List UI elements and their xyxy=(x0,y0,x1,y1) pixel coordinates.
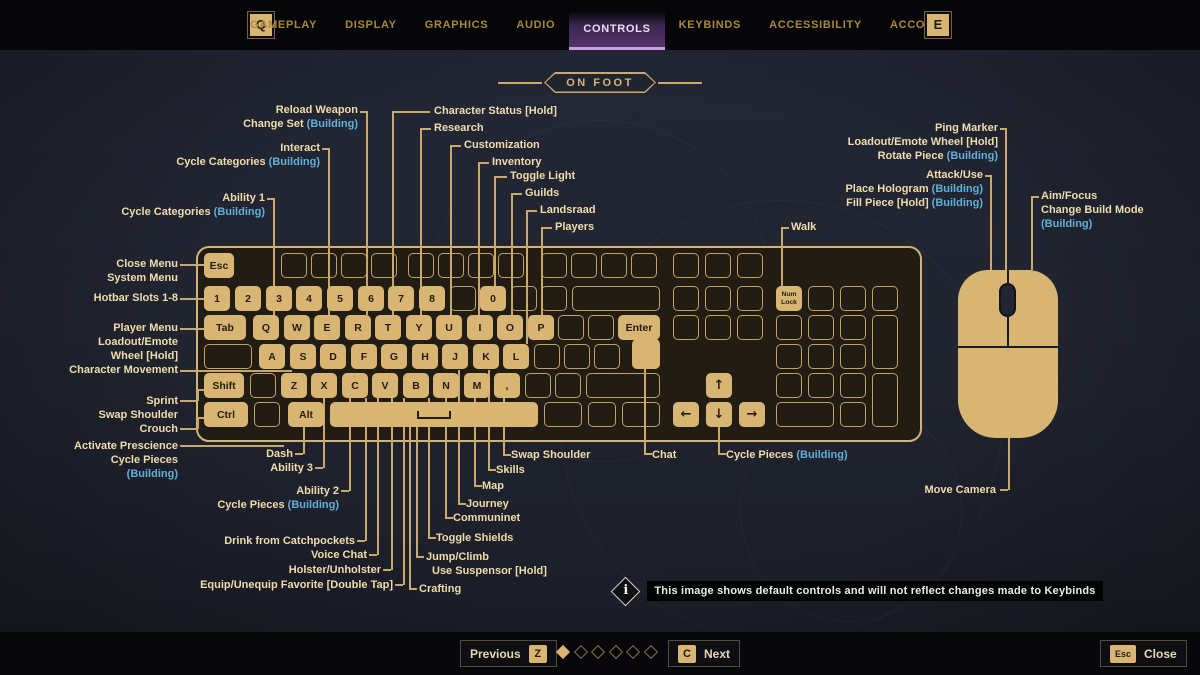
callout-line: Ping Marker xyxy=(848,121,998,135)
tab-keybinds[interactable]: KEYBINDS xyxy=(665,0,755,50)
keybind-callout: Sprint xyxy=(146,394,178,408)
keybind-callout: Journey xyxy=(466,497,509,511)
key-4: 4 xyxy=(296,286,322,311)
key-blank xyxy=(808,286,834,311)
tab-accessibility[interactable]: ACCESSIBILITY xyxy=(755,0,876,50)
callout-line: Player Menu xyxy=(98,321,178,335)
tab-controls[interactable]: CONTROLS xyxy=(569,12,664,50)
mouse-body-divider xyxy=(958,346,1058,348)
connector-line xyxy=(197,389,204,391)
connector-line xyxy=(1031,196,1033,270)
callout-line: Toggle Shields xyxy=(436,531,513,545)
key-6: 6 xyxy=(358,286,384,311)
key-blank xyxy=(541,286,567,311)
callout-line: Character Status [Hold] xyxy=(434,104,557,118)
next-tab-key-badge: E xyxy=(924,11,952,39)
key-blank xyxy=(564,344,590,369)
callout-line: Chat xyxy=(652,448,676,462)
keybind-callout: Move Camera xyxy=(924,483,996,497)
keybind-callout: Drink from Catchpockets xyxy=(224,534,355,548)
tab-graphics[interactable]: GRAPHICS xyxy=(411,0,503,50)
key-num-lock: Num Lock xyxy=(776,286,802,311)
close-button[interactable]: Esc Close xyxy=(1100,640,1187,667)
connector-line xyxy=(488,469,496,471)
callout-line: Close Menu xyxy=(107,257,178,271)
section-title: ON FOOT xyxy=(546,74,655,92)
tab-gameplay[interactable]: GAMEPLAY xyxy=(236,0,331,50)
callout-line: Swap Shoulder xyxy=(511,448,590,462)
callout-line: Ability 3 xyxy=(270,461,313,475)
key-u: U xyxy=(436,315,462,340)
connector-line xyxy=(494,176,507,178)
callout-line: Reload Weapon xyxy=(243,103,358,117)
key-r: R xyxy=(345,315,371,340)
key-blank xyxy=(371,253,397,278)
key-blank xyxy=(588,402,616,427)
callout-line: System Menu xyxy=(107,271,178,285)
connector-line xyxy=(366,111,368,315)
connector-line xyxy=(1000,489,1008,491)
key-blank xyxy=(872,315,898,369)
tab-bar: GAMEPLAYDISPLAYGRAPHICSAUDIOCONTROLSKEYB… xyxy=(270,0,930,50)
connector-line xyxy=(383,569,391,571)
callout-line: Drink from Catchpockets xyxy=(224,534,355,548)
z-key-icon: Z xyxy=(529,645,547,663)
key-blank xyxy=(632,339,660,369)
tab-audio[interactable]: AUDIO xyxy=(502,0,569,50)
key-blank xyxy=(673,253,699,278)
keybind-callout: Activate PrescienceCycle Pieces(Building… xyxy=(74,439,178,481)
key-blank xyxy=(468,253,494,278)
callout-line: Guilds xyxy=(525,186,559,200)
connector-line xyxy=(341,490,349,492)
key-blank xyxy=(776,315,802,340)
page-dot-2 xyxy=(573,645,587,659)
page-dot-3 xyxy=(591,645,605,659)
keybind-callout: Player MenuLoadout/EmoteWheel [Hold] xyxy=(98,321,178,363)
key-c: C xyxy=(342,373,368,398)
keybind-callout: Walk xyxy=(791,220,816,234)
key-blank xyxy=(673,286,699,311)
callout-line: Crouch xyxy=(140,422,179,436)
connector-line xyxy=(395,584,403,586)
key-y: Y xyxy=(406,315,432,340)
key-blank xyxy=(737,253,763,278)
connector-line xyxy=(392,111,394,315)
keybind-callout: Toggle Light xyxy=(510,169,575,183)
callout-line: Change Build Mode xyxy=(1041,203,1144,217)
key-shift: Shift xyxy=(204,373,244,398)
connector-line xyxy=(197,417,204,419)
key--: ← xyxy=(673,402,699,427)
next-button-label: Next xyxy=(704,647,730,661)
key-z: Z xyxy=(281,373,307,398)
connector-line xyxy=(450,145,461,147)
key-k: K xyxy=(473,344,499,369)
keybind-callout: Customization xyxy=(464,138,540,152)
key-blank xyxy=(586,373,660,398)
callout-line: Hotbar Slots 1-8 xyxy=(94,291,178,305)
key-blank xyxy=(737,315,763,340)
key-blank xyxy=(840,402,866,427)
key-space xyxy=(330,402,538,427)
connector-line xyxy=(445,517,453,519)
key-blank xyxy=(808,373,834,398)
key-blank xyxy=(498,253,524,278)
key-g: G xyxy=(381,344,407,369)
connector-line xyxy=(428,537,436,539)
keybind-callout: Close MenuSystem Menu xyxy=(107,257,178,285)
connector-line xyxy=(197,389,199,401)
connector-line xyxy=(416,556,424,558)
keybind-callout: Attack/UsePlace Hologram (Building)Fill … xyxy=(845,168,983,210)
keybind-callout: Hotbar Slots 1-8 xyxy=(94,291,178,305)
key-blank xyxy=(571,253,597,278)
keybind-callout: Use Suspensor [Hold] xyxy=(432,564,547,578)
key-blank xyxy=(840,373,866,398)
key-blank xyxy=(525,373,551,398)
keybind-callout: Swap Shoulder xyxy=(511,448,590,462)
key-blank xyxy=(341,253,367,278)
connector-line xyxy=(180,400,197,402)
callout-line: Holster/Unholster xyxy=(289,563,381,577)
callout-line: Use Suspensor [Hold] xyxy=(432,564,547,578)
key-blank xyxy=(622,402,660,427)
keybind-callout: Skills xyxy=(496,463,525,477)
previous-button[interactable]: Previous Z xyxy=(460,640,557,667)
key-blank xyxy=(601,253,627,278)
esc-key-icon: Esc xyxy=(1110,645,1136,663)
mouse-diagram xyxy=(958,270,1058,438)
callout-line: Landsraad xyxy=(540,203,596,217)
connector-line xyxy=(718,427,720,454)
callout-line: (Building) xyxy=(1041,217,1144,231)
key-blank xyxy=(840,344,866,369)
callout-line: Ability 1 xyxy=(121,191,265,205)
keybind-callout: Landsraad xyxy=(540,203,596,217)
callout-line: Cycle Pieces (Building) xyxy=(217,498,339,512)
key-x: X xyxy=(311,373,337,398)
key-0: 0 xyxy=(480,286,506,311)
key-blank xyxy=(588,315,614,340)
keybind-callout: Research xyxy=(434,121,484,135)
page-dot-1 xyxy=(556,645,570,659)
key-blank xyxy=(408,253,434,278)
key-tab: Tab xyxy=(204,315,246,340)
key-i: I xyxy=(467,315,493,340)
key-blank xyxy=(572,286,660,311)
connector-line xyxy=(420,128,431,130)
keybind-callout: Reload WeaponChange Set (Building) xyxy=(243,103,358,131)
key--: ↓ xyxy=(706,402,732,427)
mouse-wheel-icon xyxy=(999,283,1016,317)
keybind-callout: Guilds xyxy=(525,186,559,200)
key-t: T xyxy=(375,315,401,340)
callout-line: Attack/Use xyxy=(845,168,983,182)
keybind-callout: Ability 3 xyxy=(270,461,313,475)
key-a: A xyxy=(259,344,285,369)
callout-line: Move Camera xyxy=(924,483,996,497)
key-blank xyxy=(534,344,560,369)
callout-line: Sprint xyxy=(146,394,178,408)
keybind-callout: Character Status [Hold] xyxy=(434,104,557,118)
info-note: This image shows default controls and wi… xyxy=(647,581,1103,601)
key-blank xyxy=(705,315,731,340)
callout-line: Equip/Unequip Favorite [Double Tap] xyxy=(200,578,393,592)
connector-line xyxy=(526,210,537,212)
section-title-badge: ON FOOT xyxy=(544,72,656,93)
key-1: 1 xyxy=(204,286,230,311)
connector-line xyxy=(180,264,204,266)
key-l: L xyxy=(503,344,529,369)
previous-button-label: Previous xyxy=(470,647,521,661)
connector-line xyxy=(990,175,992,270)
callout-line: Jump/Climb xyxy=(426,550,489,564)
callout-line: Place Hologram (Building) xyxy=(845,182,983,196)
keybind-callout: Aim/FocusChange Build Mode(Building) xyxy=(1041,189,1144,231)
keybind-callout: Ping MarkerLoadout/Emote Wheel [Hold]Rot… xyxy=(848,121,998,163)
connector-line xyxy=(197,417,199,429)
key-blank xyxy=(555,373,581,398)
connector-line xyxy=(180,428,197,430)
controls-screen: Q GAMEPLAYDISPLAYGRAPHICSAUDIOCONTROLSKE… xyxy=(0,0,1200,675)
callout-line: Inventory xyxy=(492,155,542,169)
key-blank xyxy=(776,344,802,369)
key-v: V xyxy=(372,373,398,398)
keybind-callout: Ability 1Cycle Categories (Building) xyxy=(121,191,265,219)
key-5: 5 xyxy=(327,286,353,311)
callout-line: Character Movement xyxy=(69,363,178,377)
top-nav-bar: Q GAMEPLAYDISPLAYGRAPHICSAUDIOCONTROLSKE… xyxy=(0,0,1200,50)
callout-line: Dash xyxy=(266,447,293,461)
keybind-callout: Cycle Pieces (Building) xyxy=(726,448,848,462)
callout-line: Swap Shoulder xyxy=(99,408,178,422)
key-enter: Enter xyxy=(618,315,660,340)
page-dot-6 xyxy=(643,645,657,659)
callout-line: Journey xyxy=(466,497,509,511)
callout-line: Change Set (Building) xyxy=(243,117,358,131)
key-o: O xyxy=(497,315,523,340)
key-blank xyxy=(511,286,537,311)
keybind-callout: Holster/Unholster xyxy=(289,563,381,577)
key--: , xyxy=(494,373,520,398)
connector-line xyxy=(474,485,482,487)
key-blank xyxy=(705,253,731,278)
connector-line xyxy=(409,588,417,590)
key-blank xyxy=(204,344,252,369)
keybind-callout: Communinet xyxy=(453,511,520,525)
key-m: M xyxy=(464,373,490,398)
key-alt: Alt xyxy=(288,402,324,427)
connector-line xyxy=(180,298,204,300)
connector-line xyxy=(303,427,305,454)
callout-line: Loadout/Emote xyxy=(98,335,178,349)
callout-line: Communinet xyxy=(453,511,520,525)
connector-line xyxy=(369,554,377,556)
connector-line xyxy=(511,193,522,195)
callout-line: Loadout/Emote Wheel [Hold] xyxy=(848,135,998,149)
keybind-callout: Crouch xyxy=(140,422,179,436)
key-blank xyxy=(840,286,866,311)
key-blank xyxy=(872,286,898,311)
key-d: D xyxy=(320,344,346,369)
callout-line: Cycle Pieces xyxy=(74,453,178,467)
connector-line xyxy=(357,540,365,542)
key-2: 2 xyxy=(235,286,261,311)
key-blank xyxy=(250,373,276,398)
callout-line: Ability 2 xyxy=(217,484,339,498)
key-e: E xyxy=(314,315,340,340)
key-q: Q xyxy=(253,315,279,340)
key-h: H xyxy=(412,344,438,369)
tab-display[interactable]: DISPLAY xyxy=(331,0,411,50)
key-blank xyxy=(558,315,584,340)
callout-line: Research xyxy=(434,121,484,135)
callout-line: Aim/Focus xyxy=(1041,189,1144,203)
keybind-callout: Toggle Shields xyxy=(436,531,513,545)
key-esc: Esc xyxy=(204,253,234,278)
info-icon: i xyxy=(611,577,641,607)
keybind-callout: Crafting xyxy=(419,582,461,596)
callout-line: Voice Chat xyxy=(311,548,367,562)
callout-line: Crafting xyxy=(419,582,461,596)
callout-line: Cycle Categories (Building) xyxy=(176,155,320,169)
key-blank xyxy=(776,402,834,427)
key-blank xyxy=(311,253,337,278)
key-p: P xyxy=(528,315,554,340)
keybind-callout: Chat xyxy=(652,448,676,462)
connector-line xyxy=(503,454,511,456)
key-n: N xyxy=(433,373,459,398)
connector-line xyxy=(409,427,411,589)
key-blank xyxy=(541,253,567,278)
key-s: S xyxy=(290,344,316,369)
keybind-callout: Character Movement xyxy=(69,363,178,377)
connector-line xyxy=(718,453,726,455)
connector-line xyxy=(458,503,466,505)
page-dot-5 xyxy=(626,645,640,659)
key-7: 7 xyxy=(388,286,414,311)
keybind-callout: Swap Shoulder xyxy=(99,408,178,422)
key-8: 8 xyxy=(419,286,445,311)
connector-line xyxy=(541,227,552,229)
connector-line xyxy=(478,162,489,164)
next-button[interactable]: C Next xyxy=(668,640,740,667)
callout-line: Fill Piece [Hold] (Building) xyxy=(845,196,983,210)
callout-line: Customization xyxy=(464,138,540,152)
key-blank xyxy=(808,315,834,340)
key-blank xyxy=(594,344,620,369)
callout-line: Walk xyxy=(791,220,816,234)
page-indicator xyxy=(558,647,656,657)
title-rule-left xyxy=(498,82,542,84)
keybind-callout: Map xyxy=(482,479,504,493)
key-w: W xyxy=(284,315,310,340)
callout-line: Interact xyxy=(176,141,320,155)
key-blank xyxy=(705,286,731,311)
key-blank xyxy=(737,286,763,311)
callout-line: Wheel [Hold] xyxy=(98,349,178,363)
connector-line xyxy=(1008,438,1010,490)
key-f: F xyxy=(351,344,377,369)
title-rule-right xyxy=(658,82,702,84)
connector-line xyxy=(416,427,418,557)
callout-line: Cycle Categories (Building) xyxy=(121,205,265,219)
keybind-callout: Inventory xyxy=(492,155,542,169)
key-blank xyxy=(840,315,866,340)
callout-line: Rotate Piece (Building) xyxy=(848,149,998,163)
keybind-callout: Equip/Unequip Favorite [Double Tap] xyxy=(200,578,393,592)
key-blank xyxy=(673,315,699,340)
key-blank xyxy=(872,373,898,427)
key--: ↑ xyxy=(706,373,732,398)
keybind-callout: Jump/Climb xyxy=(426,550,489,564)
key-blank xyxy=(254,402,280,427)
callout-line: Skills xyxy=(496,463,525,477)
key-blank xyxy=(631,253,657,278)
key-3: 3 xyxy=(266,286,292,311)
key-ctrl: Ctrl xyxy=(204,402,248,427)
key-b: B xyxy=(403,373,429,398)
connector-line xyxy=(644,453,652,455)
connector-line xyxy=(781,227,783,286)
key-blank xyxy=(438,253,464,278)
connector-line xyxy=(295,453,303,455)
callout-line: Toggle Light xyxy=(510,169,575,183)
callout-line: Activate Prescience xyxy=(74,439,178,453)
connector-line xyxy=(315,467,323,469)
connector-line xyxy=(494,176,496,286)
key-blank xyxy=(450,286,476,311)
connector-line xyxy=(180,370,292,372)
c-key-icon: C xyxy=(678,645,696,663)
e-key-icon: E xyxy=(927,14,949,36)
key-j: J xyxy=(442,344,468,369)
page-dot-4 xyxy=(608,645,622,659)
keybind-callout: Dash xyxy=(266,447,293,461)
key-blank xyxy=(808,344,834,369)
keybind-callout: Players xyxy=(555,220,594,234)
keybind-callout: Voice Chat xyxy=(311,548,367,562)
keybind-callout: Ability 2Cycle Pieces (Building) xyxy=(217,484,339,512)
key-blank xyxy=(776,373,802,398)
key-blank xyxy=(281,253,307,278)
connector-line xyxy=(180,328,204,330)
connector-line xyxy=(392,111,430,113)
close-button-label: Close xyxy=(1144,647,1177,661)
connector-line xyxy=(1005,128,1007,283)
callout-line: Players xyxy=(555,220,594,234)
callout-line: (Building) xyxy=(74,467,178,481)
keybind-callout: InteractCycle Categories (Building) xyxy=(176,141,320,169)
key-blank xyxy=(544,402,582,427)
callout-line: Map xyxy=(482,479,504,493)
callout-line: Cycle Pieces (Building) xyxy=(726,448,848,462)
key--: → xyxy=(739,402,765,427)
